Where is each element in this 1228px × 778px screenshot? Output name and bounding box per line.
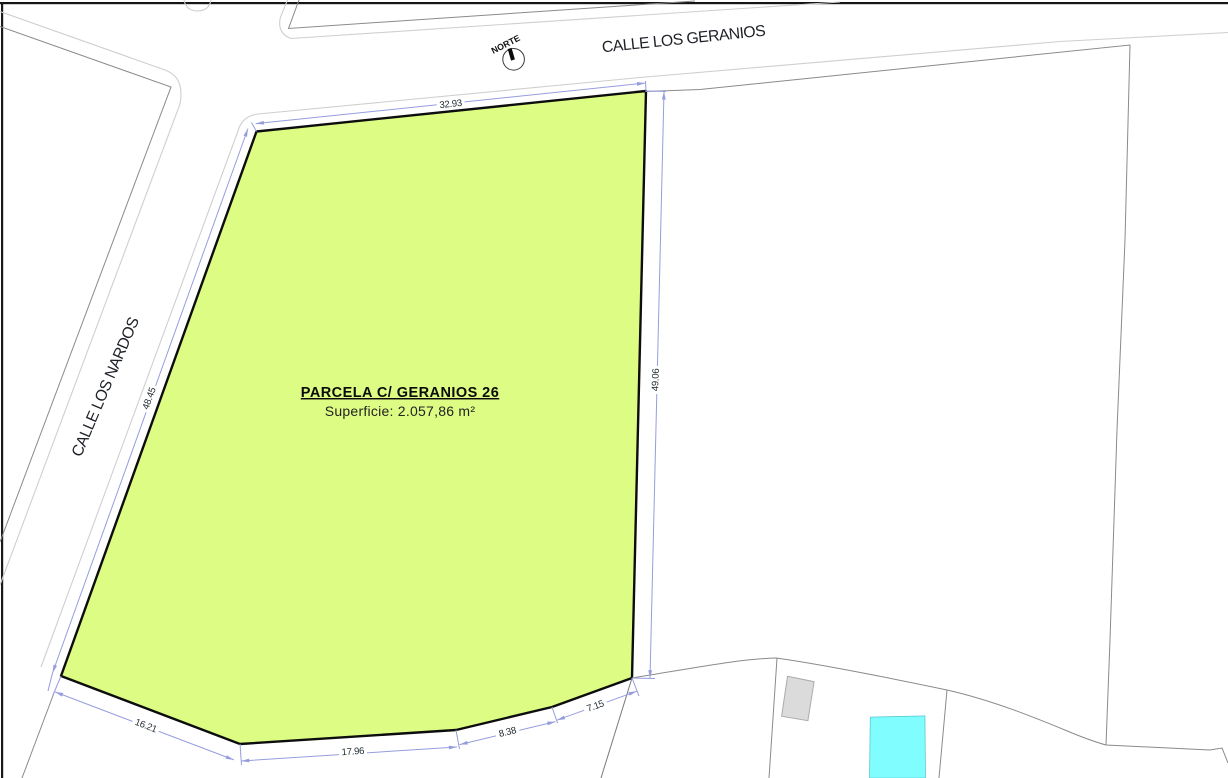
svg-text:49.06: 49.06 [650,368,662,391]
svg-text:PARCELA C/ GERANIOS 26: PARCELA C/ GERANIOS 26 [301,385,499,401]
svg-text:32.93: 32.93 [439,98,463,111]
svg-text:17.96: 17.96 [341,746,364,758]
svg-text:Superficie: 2.057,86 m²: Superficie: 2.057,86 m² [325,403,476,419]
